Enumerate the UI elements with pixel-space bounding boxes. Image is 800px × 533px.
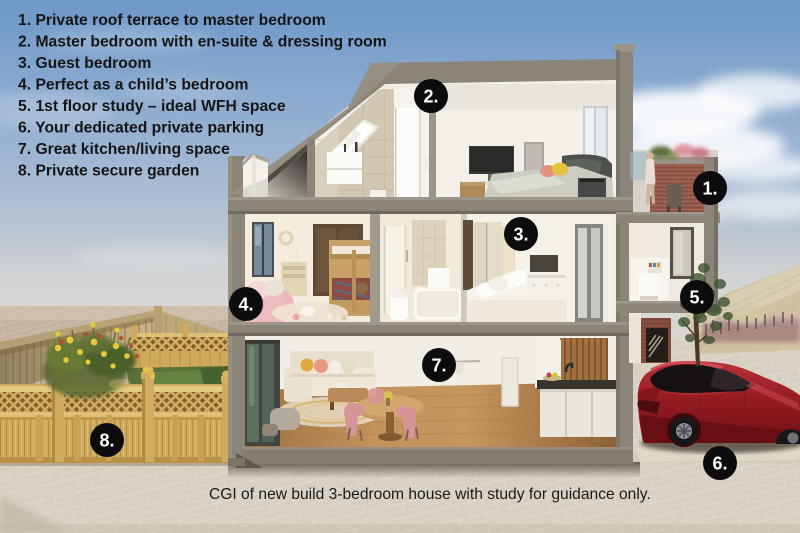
svg-text:5.: 5. (689, 288, 704, 308)
svg-text:CGI of new build 3-bedroom hou: CGI of new build 3-bedroom house with st… (209, 486, 651, 503)
svg-text:4.: 4. (238, 295, 253, 315)
svg-text:8.: 8. (99, 431, 114, 451)
svg-text:2.: 2. (423, 87, 438, 107)
svg-text:4. Perfect as a child’s bedroo: 4. Perfect as a child’s bedroom (18, 77, 248, 94)
svg-text:1.: 1. (702, 179, 717, 199)
svg-text:3.: 3. (513, 225, 528, 245)
svg-text:1. Private roof terrace to mas: 1. Private roof terrace to master bedroo… (18, 12, 326, 29)
svg-text:7. Great kitchen/living space: 7. Great kitchen/living space (18, 141, 230, 158)
svg-text:8. Private secure garden: 8. Private secure garden (18, 163, 199, 180)
svg-text:6. Your dedicated private park: 6. Your dedicated private parking (18, 120, 264, 137)
svg-text:5. 1st floor study – ideal WFH: 5. 1st floor study – ideal WFH space (18, 98, 286, 115)
svg-text:7.: 7. (431, 356, 446, 376)
svg-text:2. Master bedroom with en-suit: 2. Master bedroom with en-suite & dressi… (18, 34, 387, 51)
svg-text:6.: 6. (712, 454, 727, 474)
svg-text:3. Guest bedroom: 3. Guest bedroom (18, 55, 151, 72)
